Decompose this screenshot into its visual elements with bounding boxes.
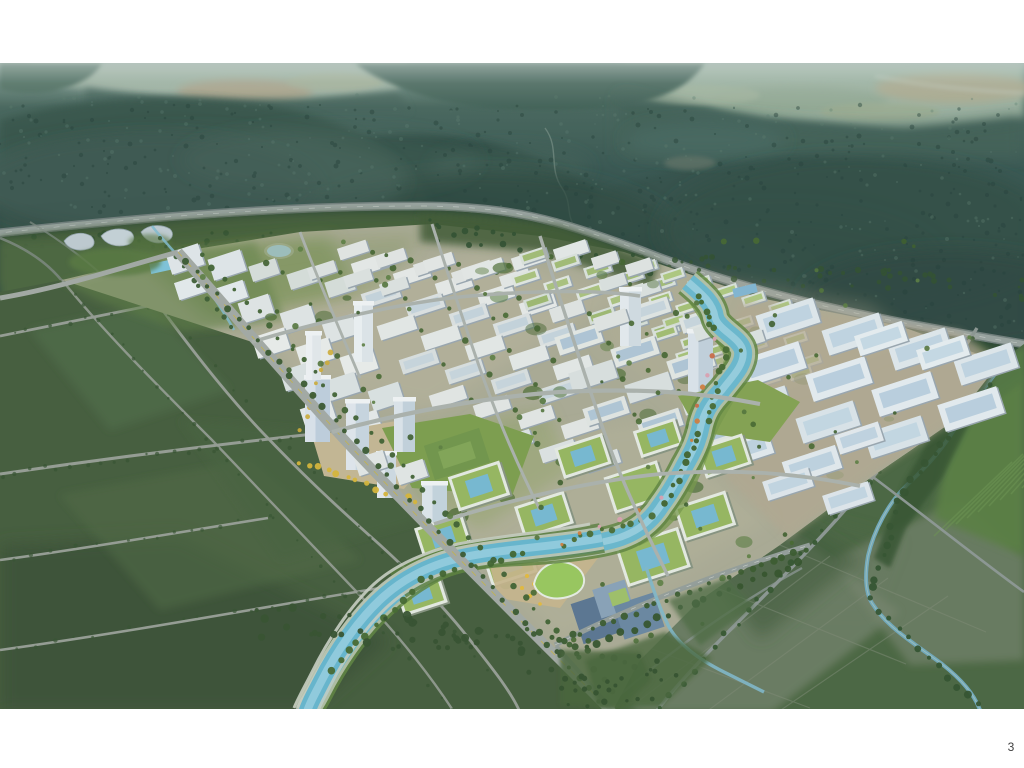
svg-text:3: 3: [1008, 740, 1015, 754]
